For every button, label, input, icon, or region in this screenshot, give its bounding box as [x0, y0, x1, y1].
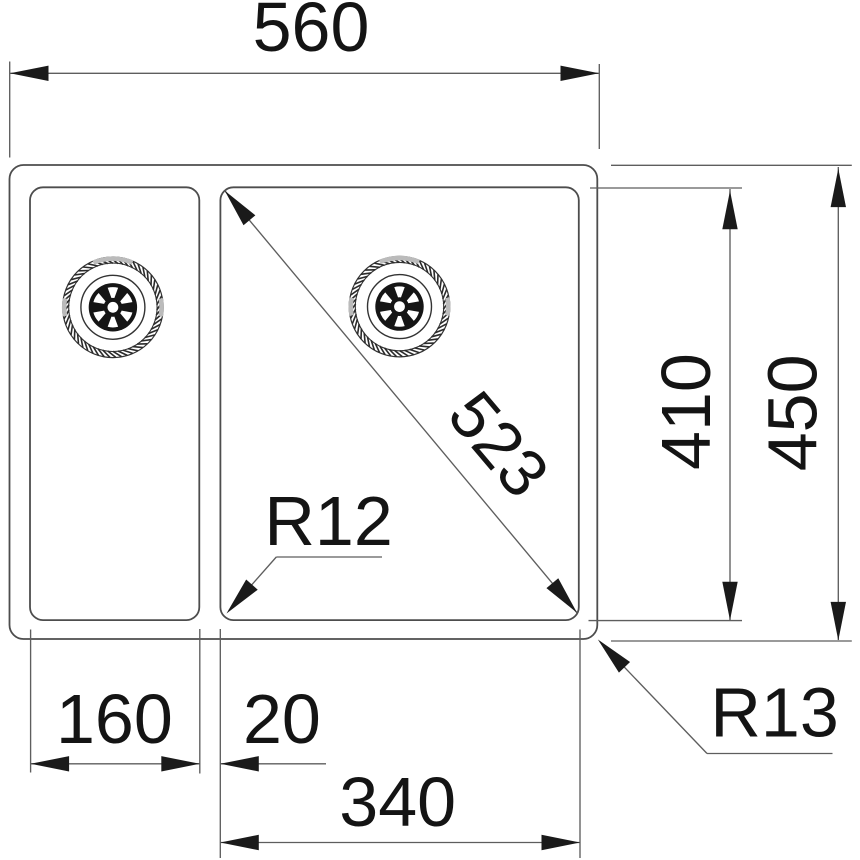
svg-text:160: 160	[56, 680, 173, 758]
svg-text:340: 340	[339, 763, 456, 841]
svg-text:R12: R12	[264, 482, 392, 560]
svg-text:20: 20	[243, 680, 321, 758]
svg-text:560: 560	[253, 0, 370, 66]
svg-text:450: 450	[754, 355, 832, 472]
svg-text:R13: R13	[710, 674, 838, 752]
svg-text:410: 410	[647, 353, 725, 470]
